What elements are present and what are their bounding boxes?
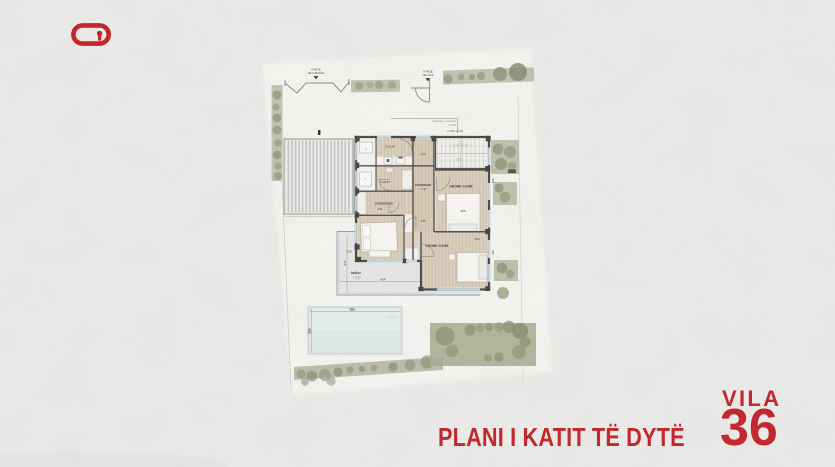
svg-text:750: 750 xyxy=(349,308,354,312)
svg-text:+ 3.17: + 3.17 xyxy=(353,276,361,280)
svg-text:+ 3.17: + 3.17 xyxy=(419,187,427,191)
svg-text:200: 200 xyxy=(308,328,312,333)
svg-text:305: 305 xyxy=(491,178,495,183)
svg-text:KORRIDOR: KORRIDOR xyxy=(415,183,432,187)
svg-text:GARDEROBA: GARDEROBA xyxy=(375,202,393,206)
svg-text:+ 8.50: + 8.50 xyxy=(448,123,456,127)
svg-text:140: 140 xyxy=(420,152,425,156)
svg-text:T: T xyxy=(364,177,366,181)
svg-text:+2.80 +0.20: +2.80 +0.20 xyxy=(447,129,463,133)
svg-text:320: 320 xyxy=(474,237,479,241)
svg-text:320: 320 xyxy=(491,250,495,255)
svg-text:DHOME GJUMI: DHOME GJUMI xyxy=(426,244,449,248)
svg-text:TUALET: TUALET xyxy=(385,145,396,149)
svg-text:730: 730 xyxy=(346,250,351,254)
svg-text:170: 170 xyxy=(456,158,461,162)
svg-text:DHOME GJUMI: DHOME GJUMI xyxy=(450,185,473,189)
svg-text:135: 135 xyxy=(420,219,425,223)
svg-text:TUALET: TUALET xyxy=(380,180,391,184)
svg-text:P: 40 m2: P: 40 m2 xyxy=(386,315,398,319)
svg-text:balkon: balkon xyxy=(351,271,361,275)
svg-text:NE VILE: NE VILE xyxy=(422,73,433,77)
svg-text:NE GARAZH: NE GARAZH xyxy=(308,71,325,75)
svg-text:671: 671 xyxy=(343,260,347,265)
svg-text:404: 404 xyxy=(380,278,385,282)
svg-text:+2.80 +3.20: +2.80 +3.20 xyxy=(452,144,468,148)
svg-text:245: 245 xyxy=(378,207,383,211)
svg-text:305: 305 xyxy=(460,209,465,213)
